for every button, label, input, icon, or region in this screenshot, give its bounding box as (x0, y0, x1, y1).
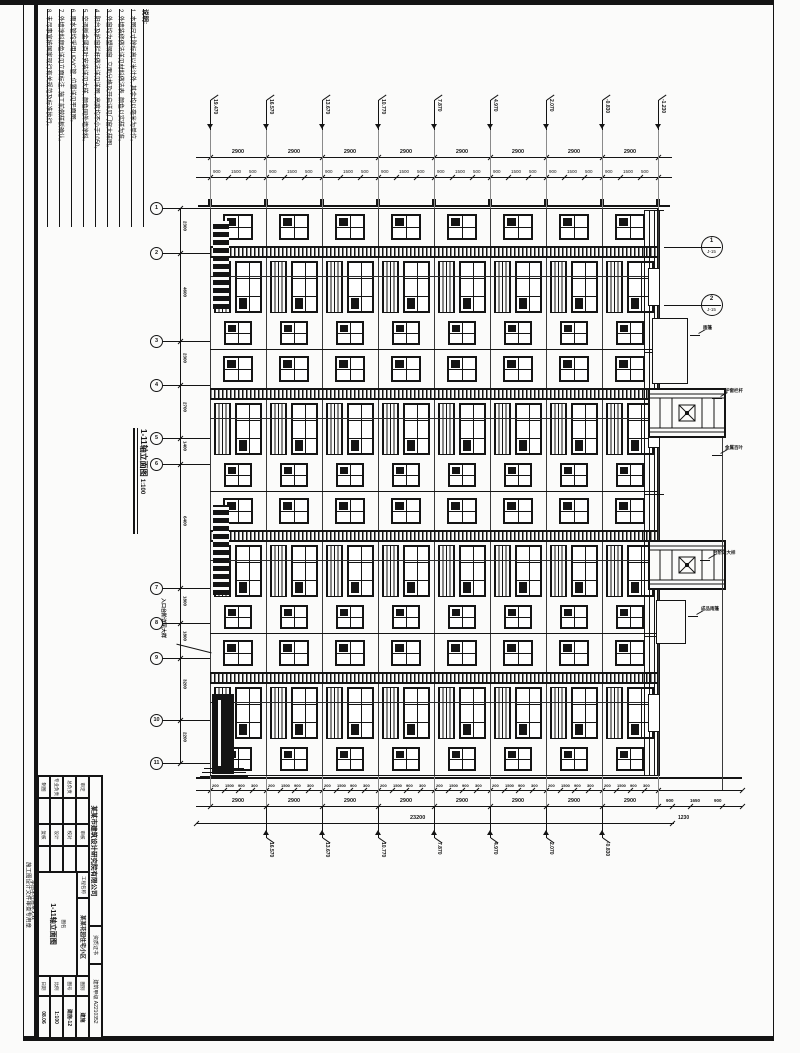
window (559, 498, 589, 524)
title-block-cell: 建施 (76, 996, 89, 1039)
window-rail (449, 227, 475, 228)
balcony-door-window (347, 545, 374, 597)
window (504, 463, 532, 487)
level-triangle (375, 830, 381, 835)
line (202, 772, 246, 773)
dim-text: 900 (630, 784, 637, 788)
window (615, 214, 645, 240)
balcony-door-window (571, 261, 598, 313)
dwg-name: 1-11轴立面图 (48, 903, 58, 945)
balcony-door-window (235, 687, 262, 739)
window (392, 321, 420, 345)
window (279, 640, 309, 666)
dim-text: 500 (473, 170, 481, 175)
balcony-rail-panel (494, 403, 511, 455)
title-block-cell: 校对 (63, 824, 76, 846)
window (616, 321, 644, 345)
window (224, 463, 252, 487)
title-block-cell: 1:100 (50, 996, 63, 1039)
dim-text: 200 (212, 784, 219, 788)
line (163, 588, 210, 589)
line (210, 130, 211, 208)
leader-diagonal (176, 644, 211, 654)
dim-text: 2900 (224, 799, 252, 805)
level-triangle (543, 124, 549, 129)
window-rail (450, 475, 474, 476)
window (560, 605, 588, 629)
window (336, 463, 364, 487)
window-rail (617, 369, 643, 370)
level-triangle (487, 124, 493, 129)
title-block-cell: 日期 (37, 976, 50, 996)
window-sash-dark (631, 582, 639, 593)
window-sash-dark (395, 644, 404, 652)
dim-text: 300 (643, 784, 650, 788)
balcony-rail-panel (326, 403, 343, 455)
window-rail (562, 759, 586, 760)
line (490, 130, 491, 208)
window-rail (506, 333, 530, 334)
title-block-cell (37, 798, 50, 824)
balcony-rail-panel (270, 545, 287, 597)
window-rail (506, 617, 530, 618)
balcony-rail-panel (550, 403, 567, 455)
dim-text: 500 (641, 170, 649, 175)
window-rail (281, 653, 307, 654)
callout-label: 金属百叶 (725, 446, 743, 451)
title-block-cell: 工程名称 (77, 872, 89, 898)
window (279, 498, 309, 524)
title-block-cell: 建施-12 (63, 996, 76, 1039)
dim-text: 1500 (561, 784, 570, 788)
window-rail (618, 617, 642, 618)
line (210, 491, 658, 492)
detail-symbol: 2J-15 (701, 294, 723, 316)
title-block-cell: 审核 (76, 824, 89, 846)
window-sash-dark (295, 582, 303, 593)
axis-number: 7 (151, 583, 162, 594)
window-sash-dark (228, 609, 236, 616)
window (447, 214, 477, 240)
dim-text: 1500 (617, 784, 626, 788)
line (204, 768, 244, 769)
line (163, 623, 210, 624)
line (266, 208, 267, 776)
window-sash-dark (619, 644, 628, 652)
window (335, 640, 365, 666)
window-rail (617, 653, 643, 654)
window (447, 498, 477, 524)
level-triangle (543, 830, 549, 835)
window (559, 356, 589, 382)
window-rail (561, 369, 587, 370)
window-rail (394, 333, 418, 334)
window-sash-dark (452, 751, 460, 758)
dim-text: 900 (381, 170, 389, 175)
level-value: 10.770 (380, 842, 385, 857)
title-block-cell: 建筑甲级 A2210352 (89, 964, 102, 1039)
window-rail (506, 759, 530, 760)
window (447, 356, 477, 382)
axis-number: 3 (151, 336, 162, 347)
window (559, 640, 589, 666)
window-sash-dark (340, 609, 348, 616)
window-sash-dark (451, 218, 460, 226)
title-block-cell: 图号 (63, 976, 76, 996)
window-rail (618, 759, 642, 760)
axis-bubble: 1 (150, 202, 163, 215)
dim-text: 900 (549, 170, 557, 175)
line (700, 560, 710, 561)
window-sash-dark (395, 502, 404, 510)
level-triangle (431, 830, 437, 835)
title-block-cell: 复核 (37, 824, 50, 846)
dim-text: 300 (363, 784, 370, 788)
dim-text: 2900 (224, 150, 252, 156)
callout-label: 雨篷 (703, 326, 712, 331)
window (391, 356, 421, 382)
axis-dim-text: 2200 (182, 732, 187, 742)
dim-overall: 23200 (410, 816, 425, 822)
axis-dim-text: 2700 (182, 402, 187, 412)
window-rail (617, 511, 643, 512)
window-mullion (417, 689, 418, 737)
window-sash-dark (407, 582, 415, 593)
window-mullion (305, 547, 306, 595)
window-mullion (641, 263, 642, 311)
balcony-rail-panel (270, 261, 287, 313)
dim-text: 2900 (392, 799, 420, 805)
window-sash-dark (619, 360, 628, 368)
window-sash-dark (395, 360, 404, 368)
dim-text: 500 (249, 170, 257, 175)
entry-callout: 入口台阶详见大样 (160, 598, 174, 678)
line (602, 208, 603, 776)
window-sash-dark (451, 502, 460, 510)
facade-trim-dark (213, 221, 229, 309)
window (504, 321, 532, 345)
line (378, 130, 379, 208)
window-sash-dark (620, 325, 628, 332)
window-sash-dark (452, 467, 460, 474)
window (280, 747, 308, 771)
line (644, 210, 664, 211)
window (391, 498, 421, 524)
level-value: 16.570 (268, 99, 273, 114)
window-sash-dark (395, 218, 404, 226)
line (210, 349, 658, 350)
line (196, 777, 742, 779)
window (279, 356, 309, 382)
title-block-cell: 某某花园住宅小区 (77, 898, 89, 976)
line (490, 208, 491, 776)
line (644, 494, 664, 495)
level-triangle (263, 830, 269, 835)
line (602, 130, 603, 208)
window-rail (337, 369, 363, 370)
window-sash-dark (228, 325, 236, 332)
level-triangle (599, 124, 605, 129)
window (280, 605, 308, 629)
window (559, 214, 589, 240)
line (163, 720, 210, 721)
dim-text: 200 (268, 784, 275, 788)
window-rail (281, 511, 307, 512)
window-rail (226, 617, 250, 618)
window-rail (505, 369, 531, 370)
window (615, 498, 645, 524)
title-block-cell (63, 846, 76, 872)
title-block-cell (63, 798, 76, 824)
balcony-rail-panel (494, 687, 511, 739)
axis-number: 1 (151, 203, 162, 214)
window-mullion (473, 405, 474, 453)
window-mullion (249, 689, 250, 737)
dim-text: 900 (350, 784, 357, 788)
dim-text: 200 (324, 784, 331, 788)
dim-text: 900 (238, 784, 245, 788)
balcony-rail-panel (494, 261, 511, 313)
line (210, 208, 211, 776)
window-mullion (529, 689, 530, 737)
window (560, 321, 588, 345)
window-rail (505, 511, 531, 512)
window-sash-dark (396, 325, 404, 332)
axis-dim-text: 6400 (182, 516, 187, 526)
balcony-door-window (235, 261, 262, 313)
window-mullion (473, 547, 474, 595)
detail-number: 1 (702, 238, 721, 244)
balcony-rail-panel (382, 403, 399, 455)
window (560, 463, 588, 487)
axis-number: 9 (151, 653, 162, 664)
dim-text: 300 (307, 784, 314, 788)
dim-text: 1500 (511, 170, 521, 175)
title-block-cell (76, 798, 89, 824)
window-sash-dark (227, 360, 236, 368)
balcony-door-window (291, 545, 318, 597)
balcony-door-window (291, 687, 318, 739)
window-sash-dark (340, 751, 348, 758)
line (546, 130, 547, 208)
dim-text: 900 (666, 799, 674, 804)
window-rail (505, 653, 531, 654)
line (664, 305, 704, 306)
tower-window (648, 694, 660, 732)
dim-text: 900 (462, 784, 469, 788)
balcony-rail-panel (606, 403, 623, 455)
axis-dim-text: 2300 (182, 353, 187, 363)
title-block-cell (50, 798, 63, 824)
window-mullion (473, 689, 474, 737)
dim-text: 500 (361, 170, 369, 175)
window-rail (226, 333, 250, 334)
axis-bubble: 10 (150, 714, 163, 727)
window-rail (338, 617, 362, 618)
window-sash-dark (519, 440, 527, 451)
dim-text: 2900 (280, 150, 308, 156)
window-sash-dark (227, 644, 236, 652)
tower-window (648, 268, 660, 306)
window-rail (450, 617, 474, 618)
callout-label: 护窗栏杆 (725, 389, 743, 394)
detail-sheet: J-15 (702, 307, 721, 312)
dim-text: 900 (605, 170, 613, 175)
window-sash-dark (239, 298, 247, 309)
title-block-cell: 审定 (76, 776, 89, 798)
window-sash-dark (519, 298, 527, 309)
axis-number: 4 (151, 380, 162, 391)
window-mullion (361, 405, 362, 453)
line (163, 341, 210, 342)
dim-text: 2900 (280, 799, 308, 805)
axis-bubble: 6 (150, 458, 163, 471)
line (163, 385, 210, 386)
line (658, 130, 659, 208)
window-sash-dark (339, 644, 348, 652)
window (504, 747, 532, 771)
dim-text: 2900 (560, 150, 588, 156)
line (163, 658, 210, 659)
level-value: 10.770 (380, 99, 385, 114)
detail-divider (702, 247, 721, 248)
window-sash-dark (339, 360, 348, 368)
balcony-door-window (347, 403, 374, 455)
title-block-cell: 资质证书 (89, 926, 102, 964)
dim-text: 1500 (231, 170, 241, 175)
window-mullion (417, 263, 418, 311)
window-mullion (361, 547, 362, 595)
balcony-door-window (235, 545, 262, 597)
balcony-rail-panel (438, 545, 455, 597)
window (616, 605, 644, 629)
dim-text: 2900 (336, 150, 364, 156)
railing-band (210, 530, 658, 542)
railing-band (210, 388, 658, 400)
window (448, 605, 476, 629)
window-sash-dark (339, 502, 348, 510)
line (712, 398, 722, 399)
window-sash-dark (564, 609, 572, 616)
balcony-rail-panel (270, 687, 287, 739)
line (163, 464, 210, 465)
level-value: 2.070 (548, 842, 553, 855)
window-rail (281, 227, 307, 228)
balcony-door-window (515, 687, 542, 739)
window-sash-dark (351, 724, 359, 735)
level-value: -1.230 (660, 99, 665, 113)
balcony-door-window (459, 545, 486, 597)
window-sash-dark (631, 440, 639, 451)
balcony-rail-panel (550, 687, 567, 739)
detail-number: 2 (702, 296, 721, 302)
window-sash-dark (564, 467, 572, 474)
axis-number: 6 (151, 459, 162, 470)
window-mullion (529, 547, 530, 595)
line (266, 776, 267, 806)
window-rail (282, 475, 306, 476)
window (392, 605, 420, 629)
window-sash-dark (507, 644, 516, 652)
dim-text: 200 (436, 784, 443, 788)
window-sash-dark (396, 609, 404, 616)
window-mullion (361, 689, 362, 737)
window-sash-dark (339, 218, 348, 226)
window-mullion (417, 405, 418, 453)
window-rail (225, 369, 251, 370)
window-mullion (641, 689, 642, 737)
level-value: 4.970 (492, 842, 497, 855)
window-rail (561, 511, 587, 512)
axis-dim-text: 1400 (182, 441, 187, 451)
title-block-cell: 总负责 (63, 776, 76, 798)
balcony-rail-panel (606, 545, 623, 597)
line (210, 276, 658, 277)
dim-text: 2900 (504, 799, 532, 805)
window-sash-dark (351, 582, 359, 593)
window (503, 214, 533, 240)
window-sash-dark (295, 440, 303, 451)
dim-text: 2900 (392, 150, 420, 156)
canopy-box (652, 318, 688, 384)
window (615, 640, 645, 666)
level-value: 2.070 (548, 99, 553, 112)
line (378, 208, 379, 776)
level-triangle (319, 830, 325, 835)
window-sash-dark (563, 644, 572, 652)
balcony-rail-panel (270, 403, 287, 455)
window-sash-dark (351, 298, 359, 309)
balcony-rail-panel (606, 687, 623, 739)
balcony-door-window (403, 403, 430, 455)
axis-bubble: 9 (150, 652, 163, 665)
dim-text: 2900 (616, 799, 644, 805)
window (391, 214, 421, 240)
window-sash-dark (507, 502, 516, 510)
dim-text: 1500 (567, 170, 577, 175)
window-mullion (305, 689, 306, 737)
window-sash-dark (619, 502, 628, 510)
axis-number: 5 (151, 433, 162, 444)
window-sash-dark (340, 467, 348, 474)
axis-bubble: 8 (150, 617, 163, 630)
window-sash-dark (619, 218, 628, 226)
window-sash-dark (340, 325, 348, 332)
dim-text: 900 (406, 784, 413, 788)
title-block-cell (76, 846, 89, 872)
axis-bubble: 5 (150, 432, 163, 445)
line (210, 633, 658, 634)
window (448, 747, 476, 771)
detail-symbol: 1J-15 (701, 236, 723, 258)
window-sash-dark (508, 467, 516, 474)
window (280, 321, 308, 345)
balcony-rail-panel (494, 545, 511, 597)
dim-text: 200 (548, 784, 555, 788)
line (163, 253, 210, 254)
window (616, 463, 644, 487)
window-rail (281, 369, 307, 370)
line (434, 208, 435, 776)
balcony-rail-panel (606, 261, 623, 313)
window-rail (617, 227, 643, 228)
window-mullion (641, 405, 642, 453)
dim-text: 1500 (287, 170, 297, 175)
window-sash-dark (631, 724, 639, 735)
window-rail (449, 511, 475, 512)
title-block-cell: 制图 (37, 776, 50, 798)
window-sash-dark (239, 582, 247, 593)
